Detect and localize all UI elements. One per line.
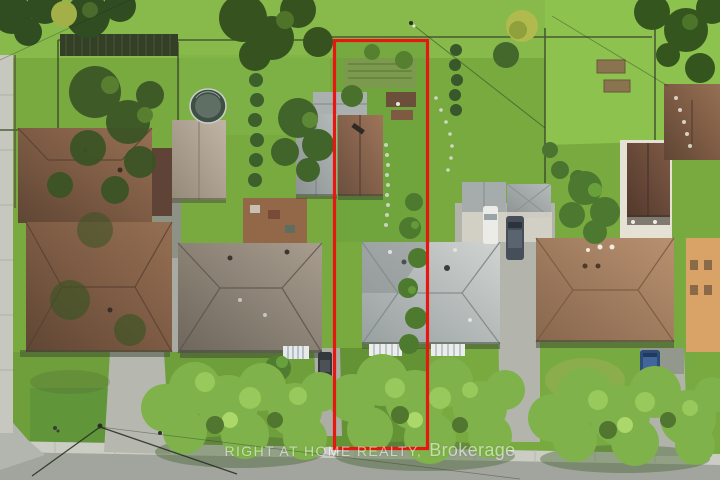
aerial-scene	[0, 0, 720, 480]
left-garage	[172, 120, 226, 203]
left-middle-house	[178, 243, 322, 359]
round-pool	[190, 89, 226, 123]
utility-pole	[98, 424, 103, 429]
top-right-house	[664, 84, 720, 160]
right-large-house	[536, 238, 674, 348]
pergola	[60, 34, 178, 56]
striped-awning	[283, 346, 309, 359]
front-center-house	[362, 242, 500, 356]
dark-car	[506, 216, 524, 260]
orange-building	[686, 238, 720, 352]
aerial-photo: RIGHT AT HOME REALTY, Brokerage	[0, 0, 720, 480]
rear-patio	[243, 198, 307, 248]
white-van	[483, 206, 498, 244]
left-sidewalk	[0, 55, 13, 433]
left-middle-house-roof	[178, 243, 322, 353]
subject-rear-house	[338, 115, 383, 200]
